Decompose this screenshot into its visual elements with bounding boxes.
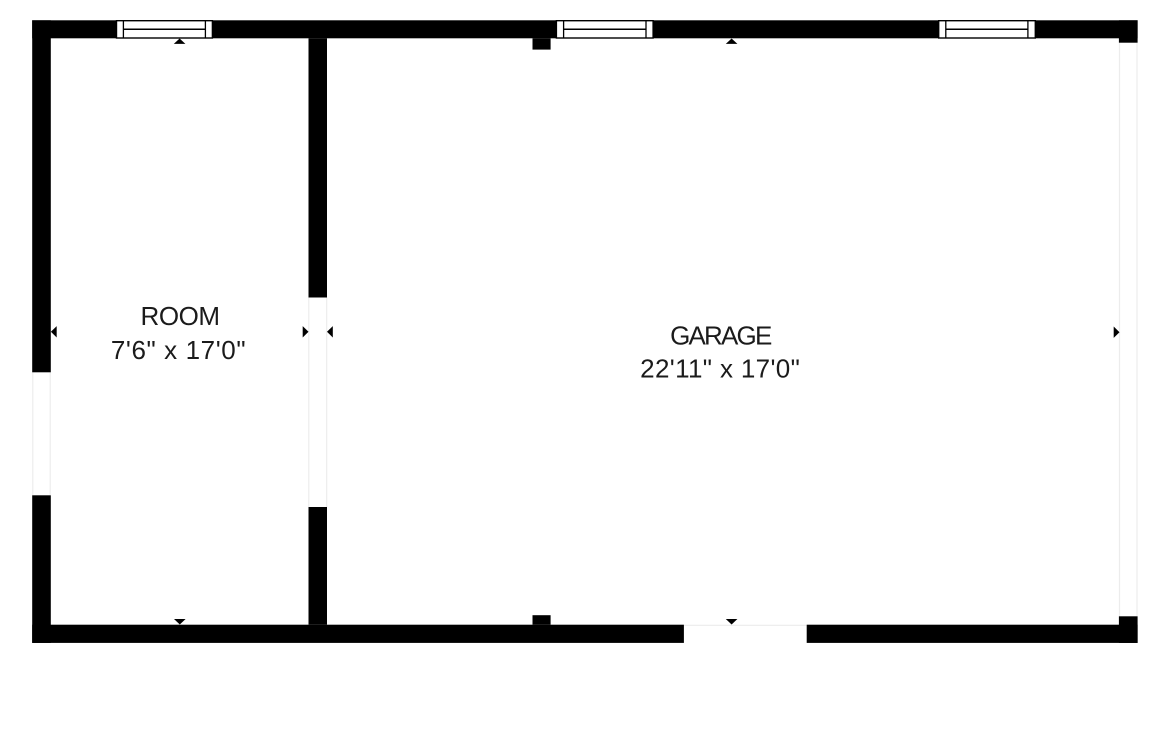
svg-text:GARAGE: GARAGE — [670, 321, 772, 351]
svg-text:7'6" x 17'0": 7'6" x 17'0" — [111, 335, 246, 365]
svg-text:ROOM: ROOM — [141, 301, 220, 331]
svg-text:22'11" x 17'0": 22'11" x 17'0" — [640, 353, 800, 383]
